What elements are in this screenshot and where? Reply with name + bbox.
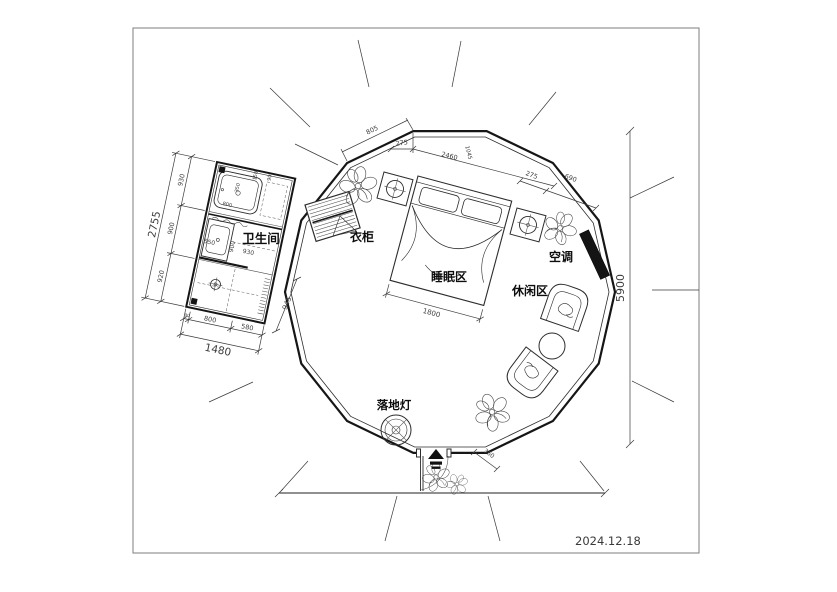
side-table xyxy=(539,333,565,359)
svg-text:275: 275 xyxy=(395,138,408,148)
column-post xyxy=(190,298,197,305)
label-floor-lamp: 落地灯 xyxy=(377,398,412,412)
title-block-date: 2024.12.18 xyxy=(575,534,641,548)
label-bathroom: 卫生间 xyxy=(242,231,280,246)
column-post xyxy=(218,166,225,173)
label-sleeping-area: 睡眠区 xyxy=(431,269,467,284)
floorplan-canvas: { "title_block": { "date": "2024.12.18" … xyxy=(0,0,837,592)
label-leisure-area: 休闲区 xyxy=(511,283,548,298)
label-wardrobe: 衣柜 xyxy=(350,229,374,244)
floorplan-drawing: 5900 805 275 2460 1045 275 690 xyxy=(0,0,837,592)
label-air-conditioner: 空调 xyxy=(549,249,573,264)
svg-text:5900: 5900 xyxy=(614,274,627,302)
